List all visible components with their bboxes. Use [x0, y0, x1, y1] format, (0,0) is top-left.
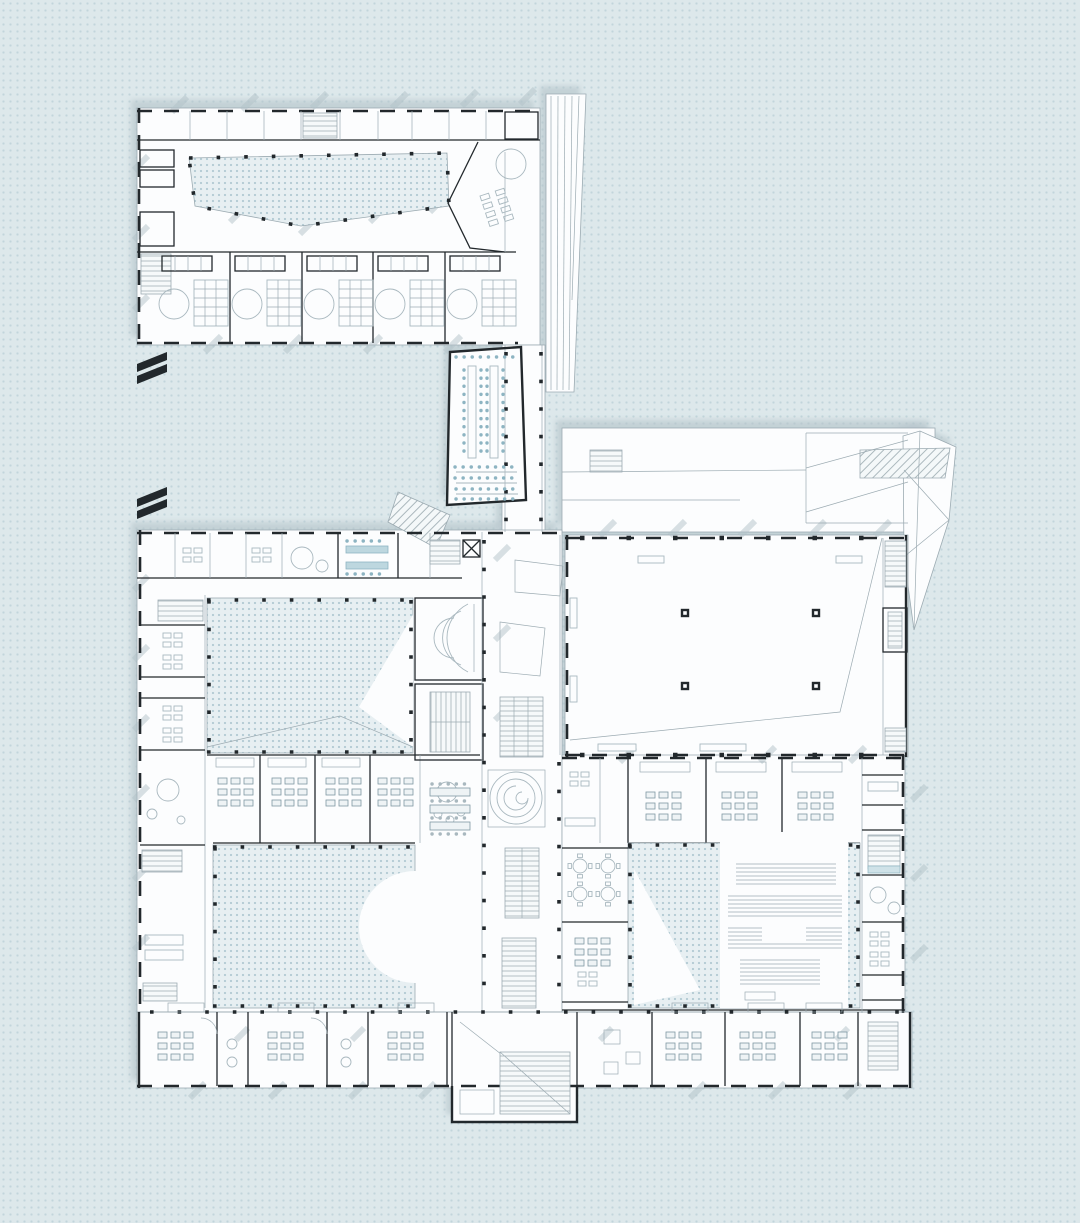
stair-west-wing — [158, 600, 203, 621]
stair-core-north — [430, 540, 460, 564]
drawing-break-marks — [137, 352, 167, 519]
floor-plan-canvas — [0, 0, 1080, 1223]
break-mark-lower — [137, 487, 167, 519]
page: { "page": { "title": "architectural-floo… — [0, 0, 1080, 1223]
central-courtyard — [207, 598, 413, 753]
stair-se — [868, 1022, 898, 1070]
stair-sw2 — [143, 983, 177, 1001]
spine-stair-3 — [502, 938, 536, 1008]
library-courtyard — [628, 832, 860, 1008]
floor-plan-drawing — [0, 0, 1080, 1223]
stair-east — [868, 835, 900, 869]
hall-stair — [885, 541, 906, 587]
break-mark-upper — [137, 352, 167, 384]
spine-stair-1 — [500, 697, 543, 757]
stair-west — [141, 254, 171, 294]
library-shelving — [720, 832, 848, 1008]
spine-cafe-tables — [430, 784, 470, 834]
stair-top-band — [303, 113, 337, 138]
stair-sw — [142, 850, 182, 872]
terrace-stair — [590, 450, 622, 472]
